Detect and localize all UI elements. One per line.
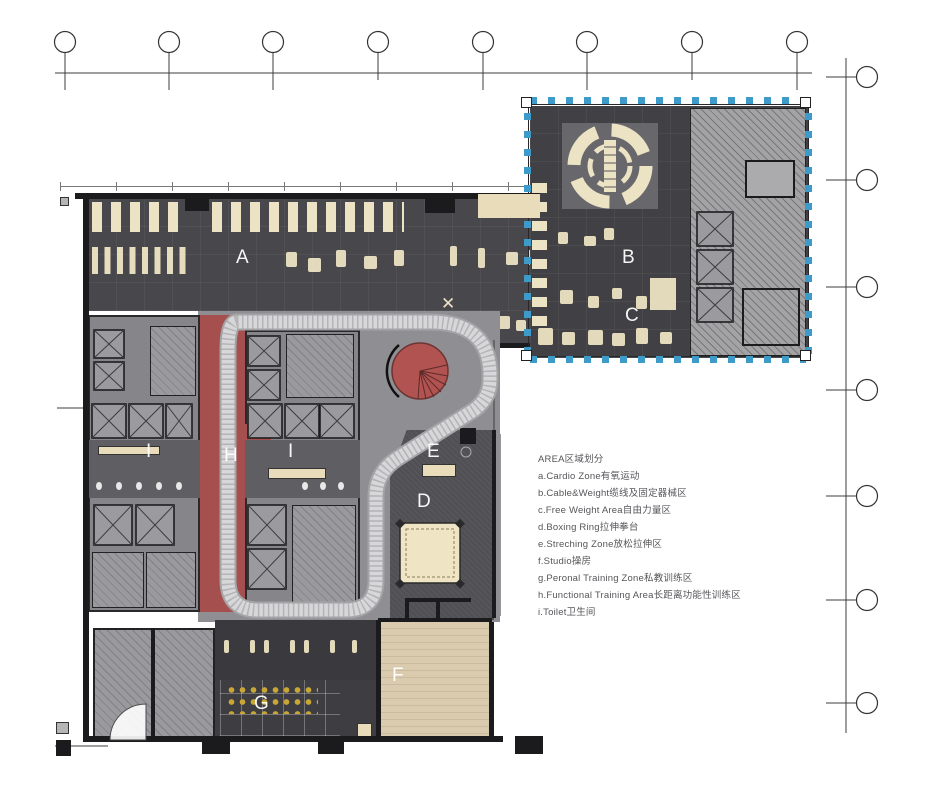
legend-title: AREA区域划分 bbox=[538, 451, 768, 468]
zone-label-b: B bbox=[622, 248, 636, 267]
zone-label-i-left: I bbox=[146, 442, 152, 461]
legend-item: d.Boxing Ring拉伸拳台 bbox=[538, 519, 768, 536]
zone-label-a: A bbox=[236, 248, 250, 267]
legend-item: a.Cardio Zone有氧运动 bbox=[538, 468, 768, 485]
zone-label-i-right: I bbox=[288, 442, 294, 461]
zone-label-f: F bbox=[392, 666, 405, 685]
area-legend: AREA区域划分 a.Cardio Zone有氧运动 b.Cable&Weigh… bbox=[538, 451, 768, 621]
door-swing bbox=[110, 704, 146, 740]
zone-label-e: E bbox=[427, 442, 441, 461]
legend-item: e.Streching Zone放松拉伸区 bbox=[538, 536, 768, 553]
boxing-ring bbox=[395, 519, 465, 589]
floor-plan-canvas: ✕ bbox=[0, 0, 944, 797]
zone-label-c: C bbox=[625, 306, 640, 325]
legend-item: g.Peronal Training Zone私教训练区 bbox=[538, 570, 768, 587]
legend-item: f.Studio操房 bbox=[538, 553, 768, 570]
zone-label-h: H bbox=[224, 446, 239, 465]
legend-item: b.Cable&Weight缆线及固定器械区 bbox=[538, 485, 768, 502]
spiral-stair bbox=[387, 343, 448, 399]
legend-item: h.Functional Training Area长距离功能性训练区 bbox=[538, 587, 768, 604]
legend-item: i.Toilet卫生间 bbox=[538, 604, 768, 621]
legend-item: c.Free Weight Area自由力量区 bbox=[538, 502, 768, 519]
detail-marker bbox=[461, 447, 471, 457]
cable-crossover-machine bbox=[574, 130, 646, 202]
zone-label-d: D bbox=[417, 492, 432, 511]
plan-overlay bbox=[0, 0, 944, 797]
zone-label-g: G bbox=[254, 694, 270, 713]
